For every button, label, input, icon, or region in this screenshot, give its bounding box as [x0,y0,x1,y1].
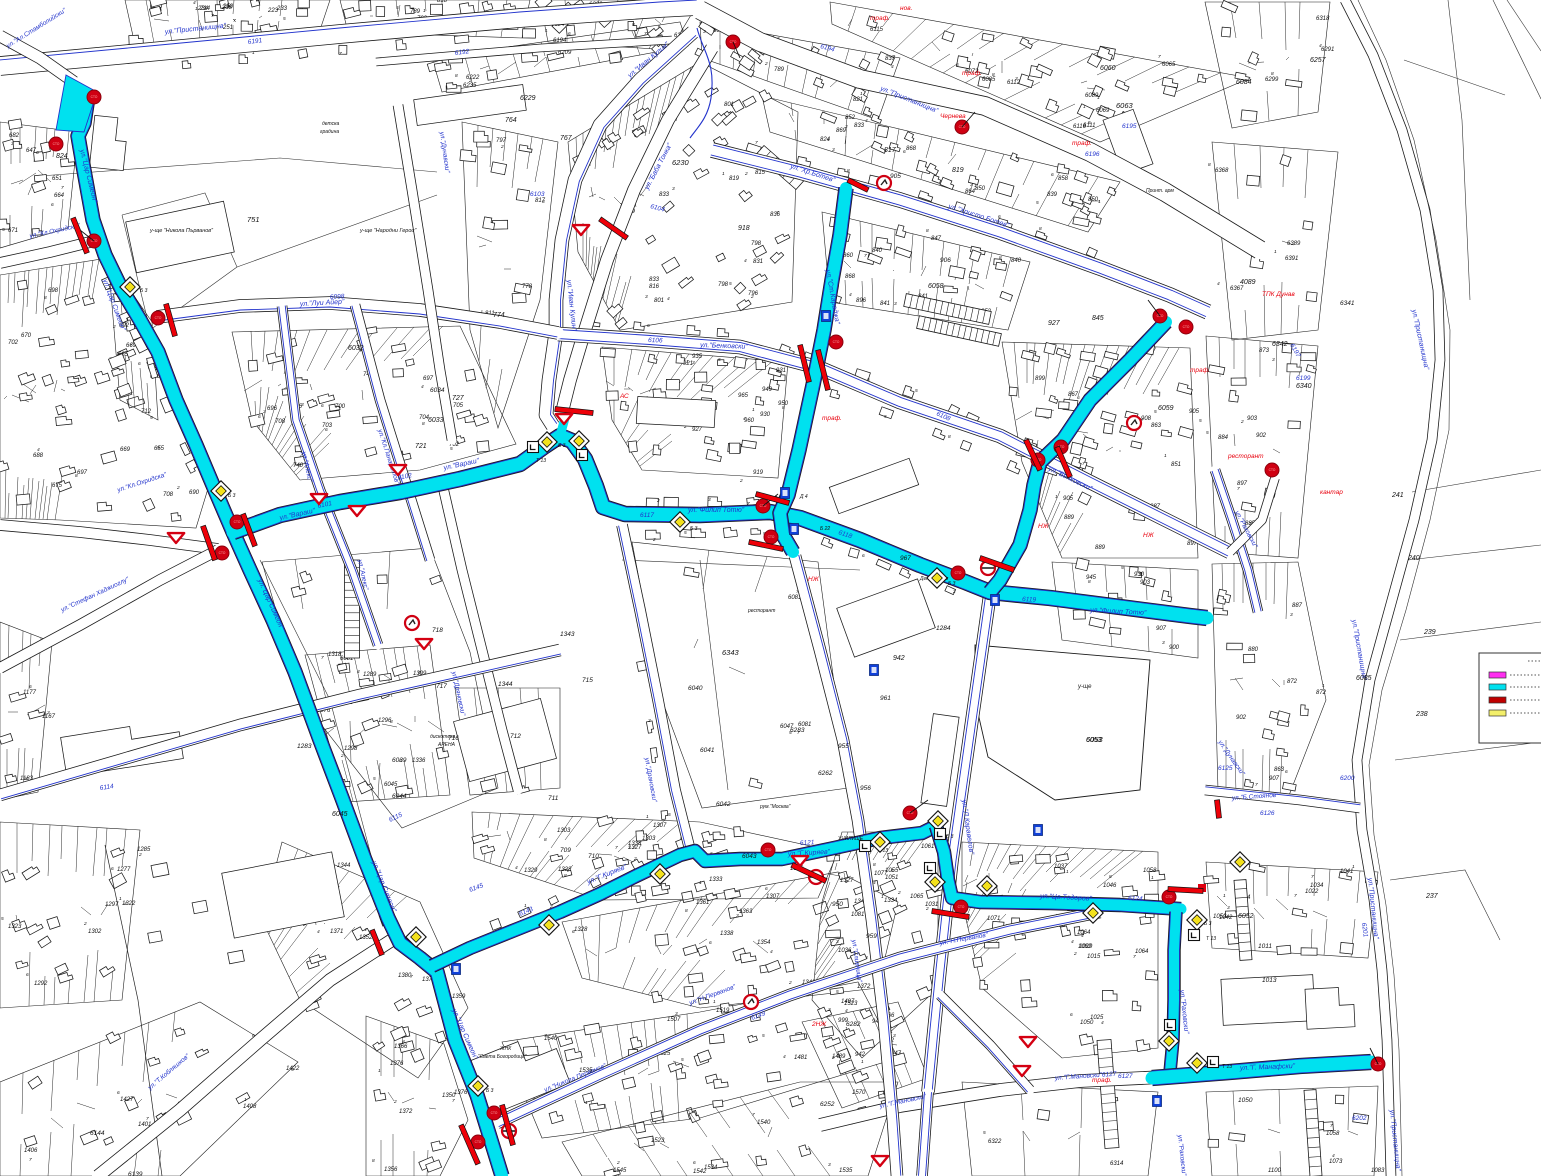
svg-text:1329: 1329 [524,868,538,874]
svg-text:798: 798 [718,282,729,288]
svg-text:1328: 1328 [558,867,572,873]
svg-text:ТПК Дунав: ТПК Дунав [1262,291,1295,298]
svg-text:817: 817 [884,147,897,154]
svg-text:1323: 1323 [8,924,22,930]
svg-text:1336: 1336 [412,758,426,764]
svg-text:8: 8 [372,1158,375,1164]
svg-text:2: 2 [827,1007,831,1013]
svg-text:959: 959 [866,933,877,940]
svg-text:918: 918 [738,225,750,232]
svg-text:3: 3 [301,402,304,408]
svg-text:902: 902 [1236,715,1247,721]
svg-text:1: 1 [1097,95,1100,101]
svg-text:6: 6 [647,323,650,329]
svg-text:956: 956 [860,785,871,792]
svg-text:1298: 1298 [344,746,358,752]
svg-text:8: 8 [1109,874,1112,880]
svg-text:4: 4 [37,447,40,453]
svg-text:873: 873 [1259,348,1270,354]
svg-text:5: 5 [450,446,453,452]
svg-text:4: 4 [515,865,518,871]
svg-text:6: 6 [718,357,721,363]
svg-text:1372: 1372 [399,1109,413,1115]
svg-text:1: 1 [1098,199,1101,205]
svg-text:6389: 6389 [1287,241,1301,247]
svg-text:6: 6 [26,972,29,978]
svg-text:671: 671 [8,228,18,234]
svg-text:6059: 6059 [1158,405,1174,412]
svg-text:CTO: CTO [219,551,226,555]
svg-text:4: 4 [364,927,367,933]
svg-text:1297: 1297 [105,902,119,908]
svg-text:5: 5 [1199,418,1202,424]
svg-text:CTO: CTO [491,1111,498,1115]
svg-text:6195: 6195 [1122,123,1137,130]
svg-text:5: 5 [1206,430,1209,436]
svg-text:2: 2 [1240,419,1244,425]
svg-text:905: 905 [1063,496,1074,502]
svg-text:6: 6 [862,553,865,559]
svg-text:8: 8 [455,73,458,79]
svg-text:797: 797 [496,138,507,144]
svg-text:3: 3 [893,1033,896,1039]
svg-text:819: 819 [729,176,740,182]
svg-text:Б 3: Б 3 [558,443,566,449]
svg-text:852: 852 [845,115,856,121]
svg-text:5: 5 [684,530,687,536]
svg-text:1334: 1334 [884,898,898,904]
svg-text:2: 2 [897,890,901,896]
svg-text:6085: 6085 [1356,675,1372,682]
svg-text:ЖНК: ЖНК [499,1046,512,1052]
svg-text:6103: 6103 [530,191,545,198]
svg-text:CTO: CTO [53,142,60,146]
svg-text:Б 3: Б 3 [228,493,236,499]
svg-text:6257: 6257 [1310,57,1327,64]
svg-text:6: 6 [693,1160,696,1166]
svg-text:6322: 6322 [988,1139,1002,1145]
svg-text:774: 774 [493,312,505,319]
svg-text:4: 4 [421,384,424,390]
svg-text:889: 889 [1064,515,1075,521]
svg-text:CTO: CTO [765,848,772,852]
svg-text:6041: 6041 [700,747,715,754]
svg-text:2: 2 [340,753,344,759]
svg-text:АРЕНА: АРЕНА [437,742,456,748]
svg-text:6039: 6039 [392,757,407,764]
svg-text:4: 4 [1101,1020,1104,1026]
svg-text:6: 6 [138,361,141,367]
svg-text:1061: 1061 [921,844,934,850]
svg-text:1: 1 [722,171,725,177]
svg-text:1507: 1507 [667,1017,681,1023]
svg-text:712: 712 [510,733,521,740]
svg-text:4: 4 [743,416,746,422]
svg-text:8: 8 [422,421,425,427]
svg-text:6063: 6063 [1116,101,1134,110]
svg-text:ул.”Филип Тотю”: ул.”Филип Тотю” [687,507,745,514]
svg-text:Б 3: Б 3 [948,581,956,587]
svg-text:935: 935 [692,354,703,360]
svg-text:1328: 1328 [574,927,588,933]
svg-text:840: 840 [872,248,883,254]
svg-text:675: 675 [52,483,63,489]
svg-text:7: 7 [644,31,647,37]
svg-text:2: 2 [652,537,656,543]
svg-text:801: 801 [724,102,734,108]
svg-text:6126: 6126 [1260,810,1275,817]
svg-text:НЖ: НЖ [1038,523,1050,530]
svg-text:1284: 1284 [936,625,951,632]
svg-text:6065: 6065 [1162,62,1176,68]
svg-text:Б 3: Б 3 [140,288,148,294]
svg-text:903: 903 [1140,580,1151,586]
svg-text:6084: 6084 [1236,79,1252,86]
svg-text:6032: 6032 [348,345,364,352]
svg-text:Принт. арм: Принт. арм [1146,188,1174,194]
svg-text:1: 1 [861,1059,864,1065]
svg-text:6343: 6343 [722,648,740,657]
svg-text:845: 845 [1092,315,1104,322]
svg-text:1065: 1065 [910,894,924,900]
svg-text:1: 1 [545,28,548,34]
svg-text:700: 700 [335,404,346,410]
svg-text:6117: 6117 [640,512,654,519]
svg-text:789: 789 [410,9,421,15]
svg-text:1083: 1083 [1371,1168,1385,1174]
svg-text:3: 3 [828,1162,831,1168]
svg-text:847: 847 [931,236,942,242]
svg-text:8: 8 [1039,226,1042,232]
svg-text:833: 833 [649,277,660,283]
svg-text:1371: 1371 [330,929,343,935]
svg-text:1307: 1307 [653,823,667,829]
svg-text:841: 841 [880,301,890,307]
svg-text:1545: 1545 [613,1168,627,1174]
svg-text:1363: 1363 [739,909,753,915]
svg-text:CTO: CTO [958,905,965,909]
svg-text:3: 3 [675,1011,678,1017]
svg-text:5: 5 [1,916,4,922]
svg-text:6: 6 [321,403,324,409]
svg-text:942: 942 [855,1052,866,1058]
svg-text:1: 1 [646,814,649,820]
svg-text:8: 8 [685,908,688,914]
svg-text:4: 4 [1071,939,1074,945]
svg-text:869: 869 [836,128,847,134]
svg-text:2: 2 [952,589,956,595]
svg-text:2: 2 [788,980,792,986]
svg-text:949: 949 [762,387,773,393]
svg-text:1344: 1344 [337,863,351,869]
svg-text:3: 3 [970,182,973,188]
svg-text:1100: 1100 [1268,1168,1282,1174]
svg-text:696: 696 [267,406,278,412]
svg-text:детска: детска [322,121,339,127]
svg-text:1022: 1022 [1305,889,1319,895]
svg-text:7: 7 [410,974,413,980]
svg-text:8: 8 [632,22,635,28]
svg-text:6127: 6127 [1118,1073,1133,1080]
svg-text:2: 2 [633,856,637,862]
svg-text:CTO: CTO [955,571,962,575]
svg-text:6: 6 [29,684,32,690]
svg-text:1071: 1071 [987,916,1000,922]
svg-text:702: 702 [8,340,19,346]
svg-text:5: 5 [157,445,160,451]
svg-text:1303: 1303 [642,836,656,842]
svg-text:1343: 1343 [560,631,575,638]
svg-text:868: 868 [906,146,917,152]
svg-text:1: 1 [1139,572,1142,578]
svg-text:8: 8 [564,873,567,879]
svg-text:CTO: CTO [91,239,98,243]
svg-text:6116: 6116 [1073,124,1087,130]
svg-text:1013: 1013 [1262,977,1277,984]
svg-text:906: 906 [940,257,951,264]
svg-text:траф.: траф. [822,415,842,422]
svg-text:5: 5 [1154,409,1157,415]
svg-text:7: 7 [146,1116,149,1122]
svg-text:1: 1 [1352,864,1355,870]
svg-text:8: 8 [1271,71,1274,77]
svg-text:5: 5 [291,1067,294,1073]
svg-text:6282: 6282 [846,1021,861,1028]
svg-text:2: 2 [616,1160,620,1166]
svg-text:715: 715 [582,677,593,684]
svg-text:3: 3 [736,913,739,919]
svg-text:4: 4 [357,669,360,675]
svg-text:6044: 6044 [392,793,407,800]
svg-text:1: 1 [1274,249,1277,255]
svg-text:7: 7 [321,655,324,661]
svg-text:4: 4 [317,929,320,935]
svg-text:840: 840 [1011,258,1022,264]
svg-text:7: 7 [1133,954,1136,960]
svg-text:5: 5 [1121,565,1124,571]
svg-text:1354: 1354 [757,940,771,946]
svg-text:3: 3 [1162,640,1165,646]
svg-text:889: 889 [1095,545,1106,551]
svg-text:1302: 1302 [88,929,102,935]
svg-text:2: 2 [739,478,743,484]
svg-text:нов.: нов. [900,5,913,12]
svg-text:6042: 6042 [716,801,731,808]
svg-text:НЖ: НЖ [808,576,820,583]
svg-text:6034: 6034 [430,387,445,394]
svg-text:1: 1 [699,880,702,886]
svg-text:6045: 6045 [332,811,348,818]
svg-text:2: 2 [656,498,660,504]
svg-text:1535: 1535 [839,1168,853,1174]
svg-text:4: 4 [667,296,670,302]
svg-text:6112: 6112 [1007,80,1021,86]
svg-text:1034: 1034 [1310,883,1324,889]
svg-text:664: 664 [54,193,65,199]
svg-text:1376: 1376 [454,1090,468,1096]
svg-text:8: 8 [390,719,393,725]
svg-text:7: 7 [61,185,64,191]
svg-text:2НЖ: 2НЖ [811,1021,827,1028]
svg-text:6: 6 [1285,769,1288,775]
svg-text:6: 6 [1070,1012,1073,1018]
svg-text:751: 751 [247,215,260,224]
svg-text:6121: 6121 [800,839,815,847]
svg-text:833: 833 [659,192,670,198]
svg-text:траф.: траф. [1092,1077,1112,1084]
svg-text:1058: 1058 [1143,868,1157,874]
svg-text:8: 8 [847,168,850,174]
svg-text:6202: 6202 [1352,1115,1367,1122]
svg-text:7: 7 [544,1033,547,1039]
svg-text:6098: 6098 [330,293,345,301]
svg-text:4: 4 [1081,933,1084,939]
svg-text:6229: 6229 [520,95,536,102]
svg-text:6043: 6043 [742,853,757,860]
svg-text:6342: 6342 [1272,341,1288,348]
svg-text:789: 789 [774,67,785,73]
svg-text:8: 8 [926,228,929,234]
svg-text:1338: 1338 [628,841,642,847]
svg-text:880: 880 [1248,647,1259,653]
svg-text:6: 6 [903,149,906,155]
svg-text:670: 670 [21,333,32,339]
svg-text:3: 3 [1227,905,1230,911]
svg-text:6: 6 [765,886,768,892]
svg-text:7: 7 [615,845,618,851]
svg-text:903: 903 [1247,416,1258,422]
svg-text:1: 1 [713,999,716,1005]
svg-text:CTO: CTO [155,316,162,320]
svg-text:траф.: траф. [1190,367,1210,374]
svg-text:6230: 6230 [672,158,690,167]
svg-text:942: 942 [893,655,905,662]
svg-text:1344: 1344 [498,681,513,688]
svg-text:824: 824 [56,153,68,160]
svg-text:710: 710 [588,853,599,860]
svg-text:767: 767 [560,135,573,142]
svg-text:2: 2 [393,1099,397,1105]
svg-text:ресторант: ресторант [1227,453,1264,460]
svg-text:1: 1 [1322,683,1325,689]
svg-text:1: 1 [752,407,755,413]
svg-text:8: 8 [948,434,951,440]
svg-text:7: 7 [864,253,867,259]
svg-text:778: 778 [522,284,533,290]
svg-text:6119: 6119 [1022,596,1037,604]
svg-text:1427: 1427 [120,1097,134,1103]
svg-text:1359: 1359 [452,994,466,1000]
svg-text:CTO: CTO [1269,468,1276,472]
svg-text:6069: 6069 [1096,108,1110,114]
svg-text:1540: 1540 [757,1120,771,1126]
svg-text:5: 5 [836,989,839,995]
svg-text:Д 4: Д 4 [799,494,808,500]
svg-text:7: 7 [233,18,236,24]
svg-text:4: 4 [744,258,747,264]
svg-text:1366: 1366 [394,1044,408,1050]
svg-text:6283: 6283 [790,727,805,734]
svg-text:6196: 6196 [1085,151,1100,158]
svg-text:1042: 1042 [1219,915,1233,921]
svg-text:3: 3 [11,141,14,147]
svg-text:927: 927 [1048,320,1061,327]
svg-text:Т 13: Т 13 [1222,1064,1232,1070]
svg-text:3: 3 [1015,76,1018,82]
svg-text:4: 4 [193,0,196,6]
svg-text:1046: 1046 [1103,883,1117,889]
svg-text:1051: 1051 [885,875,898,881]
svg-text:839: 839 [1047,192,1058,198]
svg-text:Т 13: Т 13 [1206,936,1216,942]
svg-text:6262: 6262 [818,770,833,777]
svg-text:858: 858 [1058,176,1069,182]
svg-text:868: 868 [845,274,856,280]
svg-text:2: 2 [138,852,142,858]
svg-text:траф.: траф. [1072,140,1092,147]
svg-text:8: 8 [75,473,78,479]
svg-text:CTO: CTO [833,340,840,344]
svg-text:884: 884 [1218,435,1229,441]
svg-text:6318: 6318 [1316,16,1330,22]
svg-text:1062: 1062 [1078,944,1092,950]
svg-text:2: 2 [1073,951,1077,957]
svg-text:967: 967 [900,555,911,562]
svg-text:8: 8 [544,837,547,843]
svg-text:Т 13: Т 13 [536,458,546,464]
svg-text:6: 6 [117,1090,120,1096]
svg-text:6200: 6200 [1340,775,1355,782]
svg-text:CTO: CTO [91,95,98,99]
svg-text:4089: 4089 [1240,279,1256,286]
svg-text:6053: 6053 [1086,737,1102,744]
svg-text:1406: 1406 [24,1148,38,1154]
svg-text:8: 8 [873,862,876,868]
svg-text:1: 1 [1066,869,1069,875]
svg-text:801: 801 [654,298,664,304]
svg-text:1050: 1050 [1238,1097,1253,1104]
svg-text:7: 7 [211,13,214,19]
svg-text:CTO: CTO [1166,895,1173,899]
svg-text:6: 6 [51,202,54,208]
svg-text:3: 3 [648,718,651,724]
svg-text:1361: 1361 [696,900,709,906]
svg-text:5: 5 [729,281,732,287]
svg-text:8: 8 [999,255,1002,261]
svg-text:905: 905 [1189,409,1200,415]
svg-text:902: 902 [1256,433,1267,439]
svg-text:6058: 6058 [928,283,944,290]
svg-text:819: 819 [952,167,964,174]
svg-text:2: 2 [500,144,504,150]
svg-text:5: 5 [1036,200,1039,206]
svg-text:8: 8 [44,295,47,301]
svg-text:899: 899 [1035,376,1046,382]
svg-text:2: 2 [750,294,754,300]
svg-text:1064: 1064 [1135,949,1149,955]
svg-text:3: 3 [263,409,266,415]
svg-text:4: 4 [124,901,127,907]
svg-text:1356: 1356 [384,1167,398,1173]
svg-text:1011: 1011 [1258,943,1272,950]
svg-text:1064: 1064 [1077,930,1091,936]
svg-text:1: 1 [585,1100,588,1106]
svg-text:1: 1 [119,896,122,902]
svg-text:5: 5 [373,776,376,782]
svg-text:2: 2 [764,61,768,67]
svg-text:6: 6 [568,31,571,37]
svg-text:907: 907 [1269,776,1280,782]
